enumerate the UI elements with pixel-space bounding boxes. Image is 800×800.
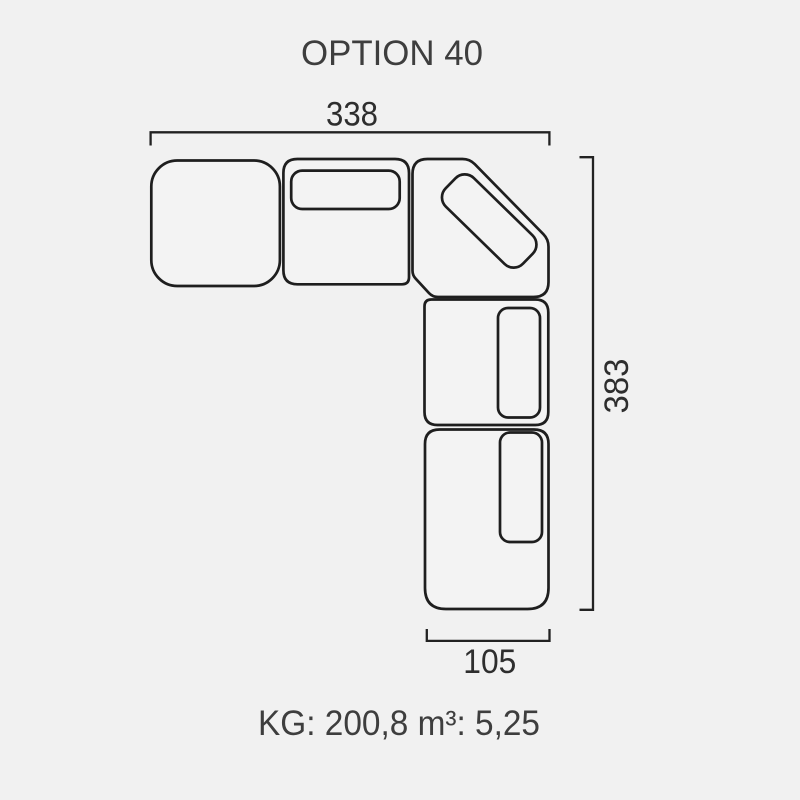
svg-text:OPTION 40: OPTION 40 bbox=[301, 34, 483, 73]
svg-text:105: 105 bbox=[463, 643, 516, 681]
svg-text:KG: 200,8 m³: 5,25: KG: 200,8 m³: 5,25 bbox=[258, 704, 540, 743]
svg-text:383: 383 bbox=[598, 359, 636, 414]
svg-text:338: 338 bbox=[326, 96, 378, 134]
